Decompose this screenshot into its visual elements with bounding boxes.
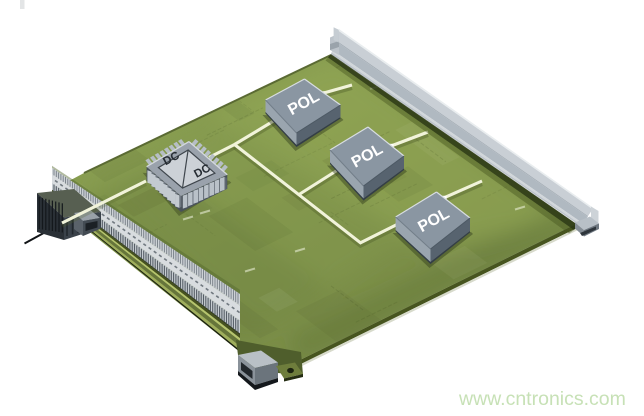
svg-text:www.cntronics.com: www.cntronics.com xyxy=(458,388,626,410)
